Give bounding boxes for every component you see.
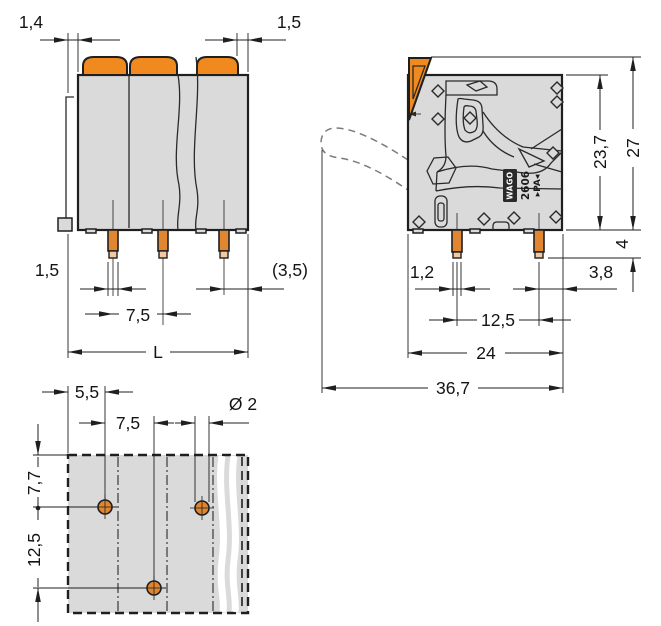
svg-text:3,8: 3,8 bbox=[589, 262, 613, 282]
svg-text:7,5: 7,5 bbox=[116, 413, 140, 433]
dim-front-lever-offset-right: 1,5 bbox=[205, 12, 301, 40]
svg-text:Ø 2: Ø 2 bbox=[229, 394, 257, 414]
svg-text:7,7: 7,7 bbox=[24, 471, 44, 495]
dim-dot-terminator bbox=[36, 506, 41, 511]
dim-side-pin-to-edge: 3,8 bbox=[513, 262, 617, 289]
dim-front-pin-pitch: 7,5 bbox=[85, 305, 191, 325]
front-lever-3 bbox=[197, 57, 238, 75]
dim-front-pin-to-edge: (3,5) bbox=[196, 260, 308, 289]
side-lever-open-position-dashed bbox=[321, 128, 408, 190]
side-body bbox=[408, 75, 562, 230]
svg-text:L: L bbox=[153, 342, 163, 362]
svg-text:24: 24 bbox=[476, 343, 496, 363]
technical-drawing-canvas: 1,4 1,5 1,5 (3,5) 7,5 bbox=[0, 0, 661, 626]
dim-side-body-height: 23,7 bbox=[590, 75, 610, 230]
dim-footprint-hole-diameter: Ø 2 bbox=[209, 394, 257, 423]
wago-logo-text: WAGO bbox=[506, 171, 515, 199]
svg-text:1,5: 1,5 bbox=[35, 260, 59, 280]
dim-side-pin-width: 1,2 bbox=[410, 262, 490, 289]
dim-side-overall-height: 27 bbox=[623, 57, 643, 230]
dim-side-pin-length: 4 bbox=[612, 239, 633, 292]
svg-text:12,5: 12,5 bbox=[481, 310, 515, 330]
svg-text:12,5: 12,5 bbox=[24, 533, 44, 567]
svg-text:4: 4 bbox=[612, 239, 632, 249]
dim-front-lever-offset-left: 1,4 bbox=[19, 12, 120, 40]
front-view: 1,4 1,5 1,5 (3,5) 7,5 bbox=[19, 12, 308, 362]
technical-drawing-page: 1,4 1,5 1,5 (3,5) 7,5 bbox=[0, 0, 661, 626]
dim-footprint-row-pitch: 12,5 bbox=[24, 510, 44, 622]
dim-footprint-hole-pitch: 7,5 bbox=[79, 413, 195, 433]
dim-side-pin-spacing: 12,5 bbox=[429, 310, 571, 330]
svg-text:1,5: 1,5 bbox=[277, 12, 301, 32]
svg-text:1,2: 1,2 bbox=[410, 262, 434, 282]
svg-text:(3,5): (3,5) bbox=[272, 260, 308, 280]
front-solder-pins bbox=[108, 230, 229, 258]
dim-side-body-depth: 24 bbox=[408, 343, 563, 363]
svg-text:1,4: 1,4 bbox=[19, 12, 44, 32]
dim-front-pin-width: 1,5 bbox=[35, 260, 146, 289]
front-latch-plate bbox=[58, 97, 74, 231]
svg-text:5,5: 5,5 bbox=[75, 382, 99, 402]
dim-footprint-edge-to-hole: 5,5 bbox=[42, 382, 133, 402]
dim-side-overall-depth: 36,7 bbox=[322, 378, 563, 398]
series-number-text: 2606 bbox=[520, 171, 532, 200]
dim-front-overall-width: L bbox=[68, 342, 248, 362]
svg-text:7,5: 7,5 bbox=[126, 305, 150, 325]
material-marking-text: ▸PA◂ bbox=[533, 174, 543, 196]
front-lever-1 bbox=[83, 57, 127, 75]
side-solder-pins bbox=[452, 230, 544, 258]
footprint-view: 5,5 7,5 Ø 2 7,7 12,5 bbox=[24, 382, 257, 622]
svg-text:36,7: 36,7 bbox=[436, 378, 470, 398]
svg-text:27: 27 bbox=[623, 138, 643, 157]
front-lever-2 bbox=[130, 57, 177, 75]
side-view: WAGO 2606 ▸PA◂ 23,7 bbox=[321, 57, 643, 398]
dim-footprint-row-offset: 7,7 bbox=[24, 424, 44, 510]
svg-text:23,7: 23,7 bbox=[590, 135, 610, 169]
